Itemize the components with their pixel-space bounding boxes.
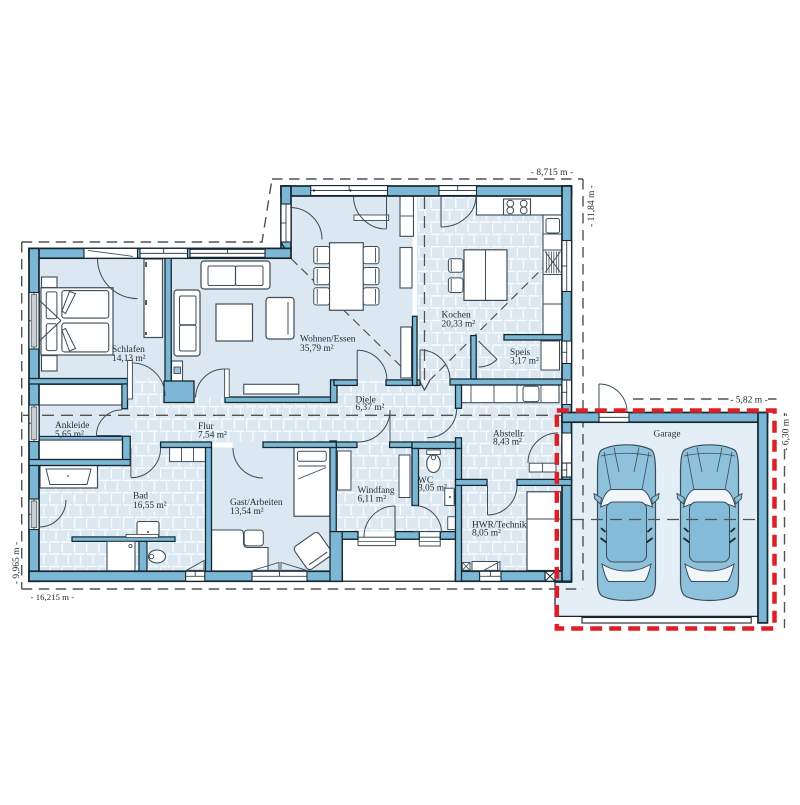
svg-text:- 6,30 m -: - 6,30 m -: [782, 413, 792, 450]
svg-text:6,11 m²: 6,11 m²: [358, 495, 387, 505]
svg-text:7,54 m²: 7,54 m²: [198, 431, 227, 441]
svg-text:6,37 m²: 6,37 m²: [356, 403, 385, 413]
svg-text:14,13 m²: 14,13 m²: [112, 354, 146, 364]
svg-text:Wohnen/Essen: Wohnen/Essen: [300, 335, 356, 345]
svg-text:8,43 m²: 8,43 m²: [493, 438, 522, 448]
svg-text:13,54 m²: 13,54 m²: [230, 507, 264, 517]
svg-text:Garage: Garage: [654, 430, 681, 440]
svg-text:- 8,715 m -: - 8,715 m -: [531, 168, 573, 178]
svg-text:20,33 m²: 20,33 m²: [442, 320, 476, 330]
svg-text:- 16,215 m -: - 16,215 m -: [31, 592, 75, 602]
svg-text:8,05 m²: 8,05 m²: [472, 529, 501, 539]
svg-text:35,79 m²: 35,79 m²: [300, 344, 334, 354]
svg-text:- 9,965 m -: - 9,965 m -: [12, 542, 22, 584]
svg-text:Bad: Bad: [133, 492, 148, 502]
svg-text:3,17 m²: 3,17 m²: [510, 357, 539, 367]
svg-text:16,55 m²: 16,55 m²: [133, 501, 167, 511]
svg-text:5,65 m²: 5,65 m²: [55, 430, 84, 440]
svg-text:- 11,84 m -: - 11,84 m -: [587, 185, 597, 227]
svg-text:3,05 m²: 3,05 m²: [418, 484, 447, 494]
svg-text:- 5,82 m -: - 5,82 m -: [730, 396, 767, 406]
